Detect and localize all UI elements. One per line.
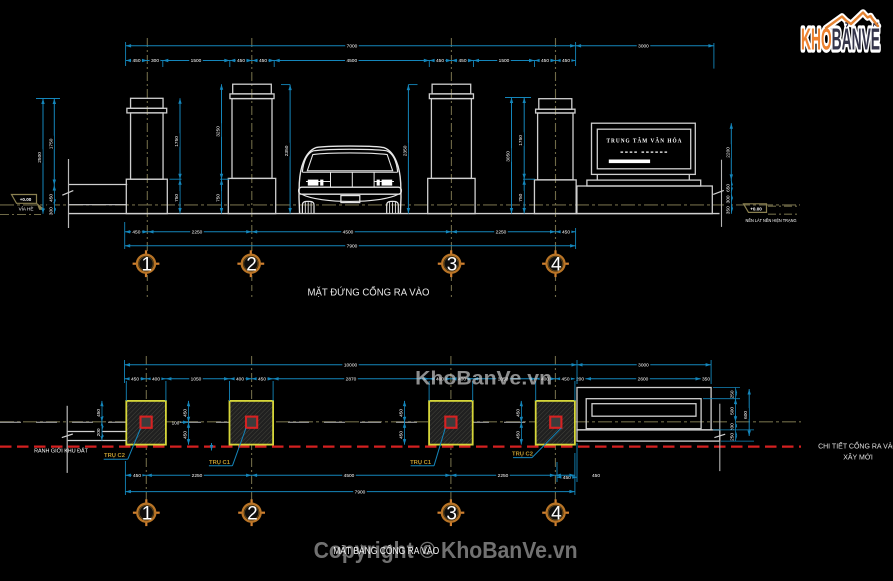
svg-text:400: 400	[236, 377, 244, 383]
svg-text:350: 350	[725, 206, 731, 214]
svg-text:750: 750	[518, 193, 524, 201]
svg-text:7900: 7900	[347, 244, 358, 250]
svg-text:RANH GIỚI KHU ĐẤT: RANH GIỚI KHU ĐẤT	[34, 448, 88, 455]
svg-text:MẶT ĐỨNG CỔNG RA VÀO: MẶT ĐỨNG CỔNG RA VÀO	[308, 286, 430, 299]
svg-text:450: 450	[562, 58, 570, 64]
svg-text:450: 450	[48, 194, 54, 202]
svg-text:TRỤ C1: TRỤ C1	[209, 460, 231, 466]
svg-text:2350: 2350	[402, 145, 408, 156]
svg-text:2250: 2250	[192, 230, 203, 236]
svg-text:2: 2	[247, 504, 258, 525]
svg-text:450: 450	[183, 431, 189, 439]
svg-text:1500: 1500	[191, 58, 202, 64]
svg-text:3000: 3000	[638, 44, 649, 50]
svg-text:+0.00: +0.00	[750, 206, 762, 211]
svg-text:1: 1	[142, 504, 153, 525]
svg-text:450: 450	[561, 377, 569, 383]
svg-text:450: 450	[515, 431, 521, 439]
svg-text:400: 400	[152, 377, 160, 383]
svg-text:2350: 2350	[284, 145, 290, 156]
svg-text:TRỤ C2: TRỤ C2	[104, 453, 125, 459]
svg-text:4: 4	[551, 504, 562, 525]
svg-text:TRỤ C2: TRỤ C2	[512, 452, 533, 458]
svg-text:+0.00: +0.00	[20, 197, 32, 202]
svg-text:350: 350	[702, 377, 710, 383]
svg-text:1750: 1750	[518, 135, 524, 146]
svg-text:4500: 4500	[344, 473, 355, 479]
svg-text:VỈA HÈ: VỈA HÈ	[19, 206, 34, 212]
svg-text:450: 450	[541, 58, 549, 64]
svg-text:2250: 2250	[192, 473, 203, 479]
svg-text:2200: 2200	[725, 147, 731, 158]
svg-text:4500: 4500	[346, 58, 357, 64]
svg-text:MẶT BẰNG CỔNG RA VÀO: MẶT BẰNG CỔNG RA VÀO	[333, 544, 439, 557]
svg-text:450: 450	[515, 409, 521, 417]
svg-text:3250: 3250	[216, 126, 222, 137]
svg-text:250: 250	[730, 433, 736, 441]
svg-text:250: 250	[730, 390, 736, 398]
svg-text:450: 450	[132, 230, 140, 236]
svg-text:300: 300	[151, 58, 159, 64]
svg-text:650: 650	[725, 184, 731, 192]
svg-text:750: 750	[174, 194, 180, 202]
svg-text:4: 4	[551, 255, 562, 276]
svg-text:3000: 3000	[638, 363, 649, 369]
svg-text:3050: 3050	[506, 151, 512, 162]
svg-text:450: 450	[258, 377, 266, 383]
svg-text:450: 450	[96, 409, 102, 417]
svg-text:4500: 4500	[343, 230, 354, 236]
svg-text:450: 450	[399, 409, 405, 417]
svg-text:450: 450	[133, 473, 141, 479]
svg-text:450: 450	[458, 58, 466, 64]
svg-text:500: 500	[730, 407, 736, 415]
svg-text:1500: 1500	[499, 58, 510, 64]
svg-text:2600: 2600	[638, 377, 649, 383]
svg-text:750: 750	[216, 194, 222, 202]
svg-text:600: 600	[743, 411, 749, 419]
svg-text:100: 100	[172, 420, 180, 425]
svg-text:2500: 2500	[37, 152, 43, 163]
svg-text:NỀN LÁT NỀN HIỆN TRẠNG: NỀN LÁT NỀN HIỆN TRẠNG	[746, 216, 797, 223]
svg-text:7900: 7900	[355, 489, 366, 495]
svg-text:2: 2	[246, 255, 257, 276]
svg-text:TRỤ C1: TRỤ C1	[410, 460, 432, 466]
svg-text:2250: 2250	[498, 473, 509, 479]
svg-text:TRUNG TÂM VĂN HÓA: TRUNG TÂM VĂN HÓA	[607, 136, 683, 144]
svg-text:1: 1	[142, 255, 153, 276]
svg-text:450: 450	[237, 58, 245, 64]
svg-text:450: 450	[592, 473, 600, 479]
svg-text:2870: 2870	[346, 377, 357, 383]
svg-text:7000: 7000	[347, 44, 358, 50]
svg-text:300: 300	[48, 207, 54, 215]
svg-text:KhoBanVe.vn: KhoBanVe.vn	[415, 368, 552, 390]
svg-text:3: 3	[446, 504, 457, 525]
svg-text:XÂY MỚI: XÂY MỚI	[843, 453, 873, 462]
svg-text:450: 450	[399, 431, 405, 439]
svg-text:1750: 1750	[48, 138, 54, 149]
svg-text:450: 450	[562, 230, 570, 236]
svg-text:3: 3	[447, 255, 458, 276]
svg-text:450: 450	[436, 58, 444, 64]
svg-text:300: 300	[725, 195, 731, 203]
svg-text:KHOBẢNVẼ: KHOBẢNVẼ	[801, 22, 880, 57]
svg-text:450: 450	[131, 377, 139, 383]
svg-text:450: 450	[183, 409, 189, 417]
svg-text:450: 450	[259, 58, 267, 64]
svg-text:1050: 1050	[191, 377, 202, 383]
svg-text:2250: 2250	[496, 230, 507, 236]
svg-text:200: 200	[96, 428, 102, 436]
svg-text:1750: 1750	[174, 136, 180, 147]
svg-text:450: 450	[132, 58, 140, 64]
svg-text:10000: 10000	[344, 363, 358, 369]
